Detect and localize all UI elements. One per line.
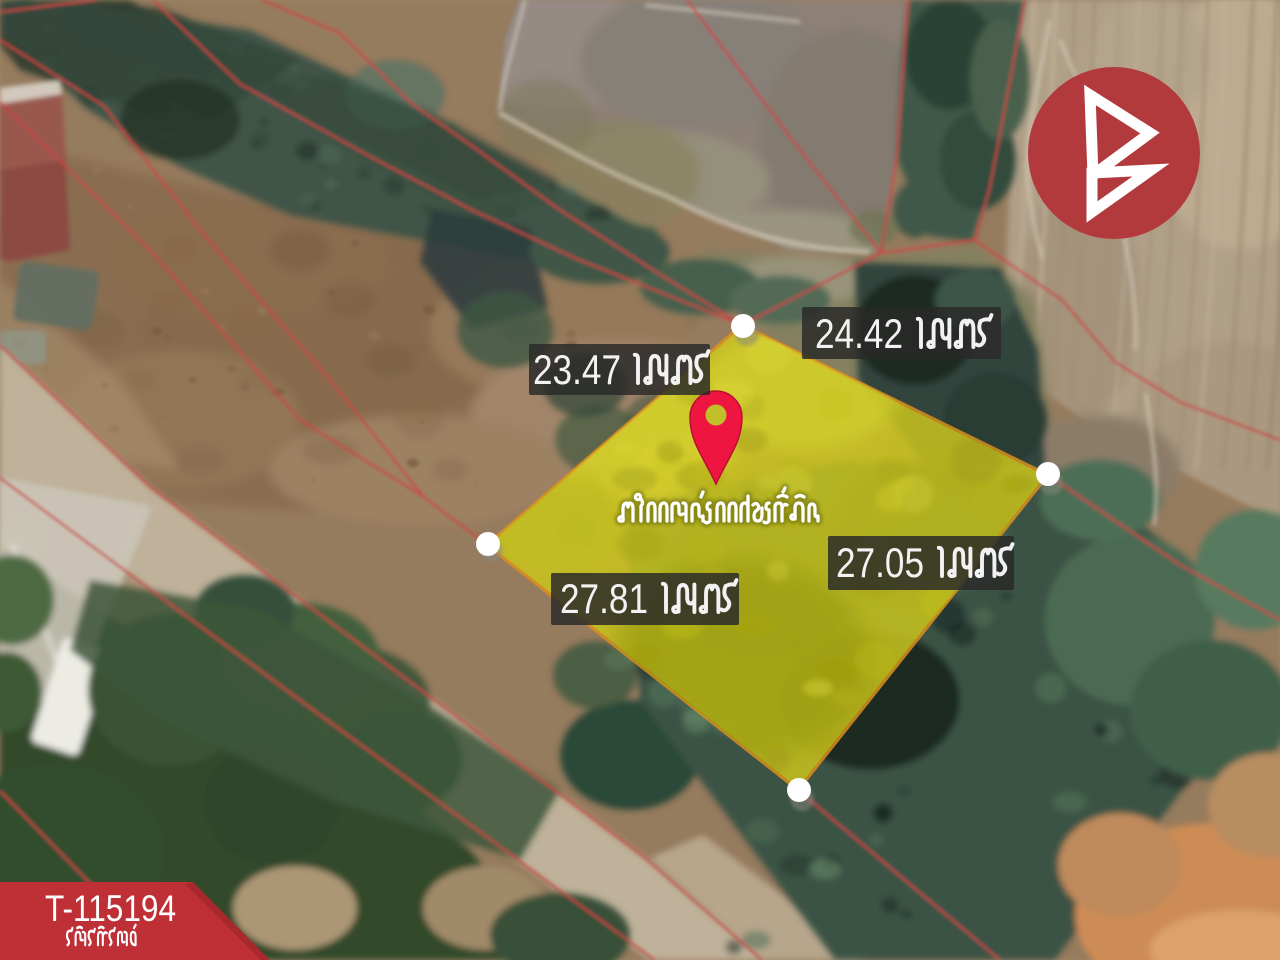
svg-text:27.81: 27.81 [560,575,648,622]
svg-text:24.42: 24.42 [815,310,903,357]
svg-text:23.47: 23.47 [533,346,621,393]
svg-text:T-115194: T-115194 [45,888,176,929]
svg-text:27.05: 27.05 [836,539,924,586]
